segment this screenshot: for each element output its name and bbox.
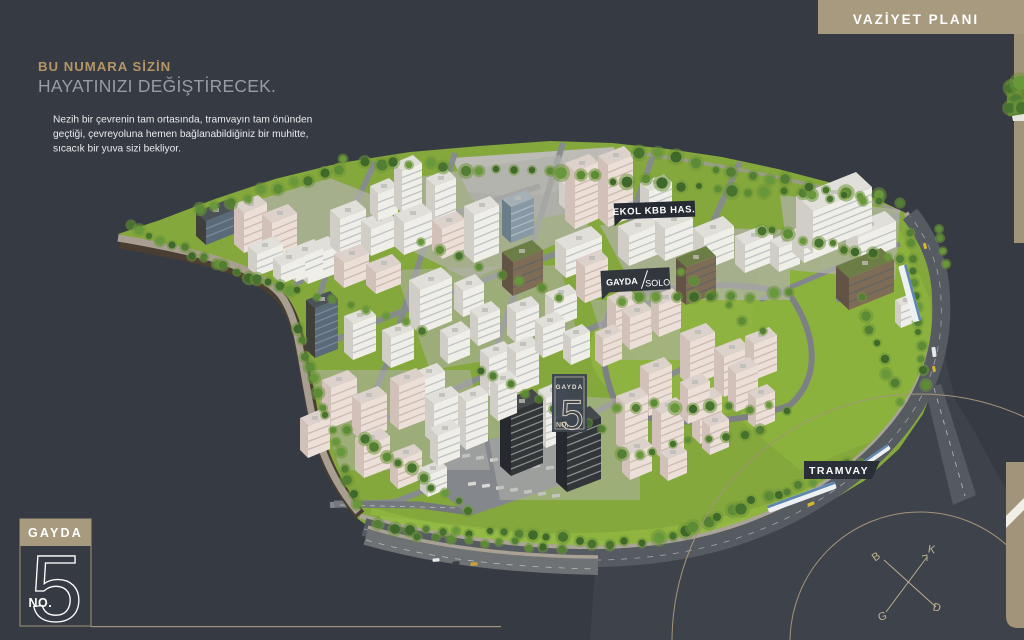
svg-text:TRAMVAY: TRAMVAY <box>809 465 869 477</box>
svg-text:GAYDA: GAYDA <box>606 276 639 288</box>
svg-text:GAYDA: GAYDA <box>556 384 584 391</box>
svg-text:BU NUMARA SİZİN: BU NUMARA SİZİN <box>38 59 171 74</box>
svg-text:Nezih bir çevrenin tam ortasın: Nezih bir çevrenin tam ortasında, tramva… <box>53 115 312 126</box>
svg-text:SOLO: SOLO <box>645 277 671 288</box>
svg-text:VAZİYET PLANI: VAZİYET PLANI <box>853 12 979 27</box>
svg-text:5: 5 <box>560 391 583 438</box>
svg-text:NO.: NO. <box>29 596 53 610</box>
svg-text:5: 5 <box>30 536 83 640</box>
svg-text:geçtiği, çevreyoluna hemen bağ: geçtiği, çevreyoluna hemen bağlanabildiğ… <box>53 129 308 140</box>
svg-text:HAYATINIZI DEĞİŞTİRECEK.: HAYATINIZI DEĞİŞTİRECEK. <box>38 76 276 96</box>
svg-text:NO.: NO. <box>556 422 569 429</box>
svg-text:sıcacık bir yuva sizi bekliyor: sıcacık bir yuva sizi bekliyor. <box>53 144 181 155</box>
